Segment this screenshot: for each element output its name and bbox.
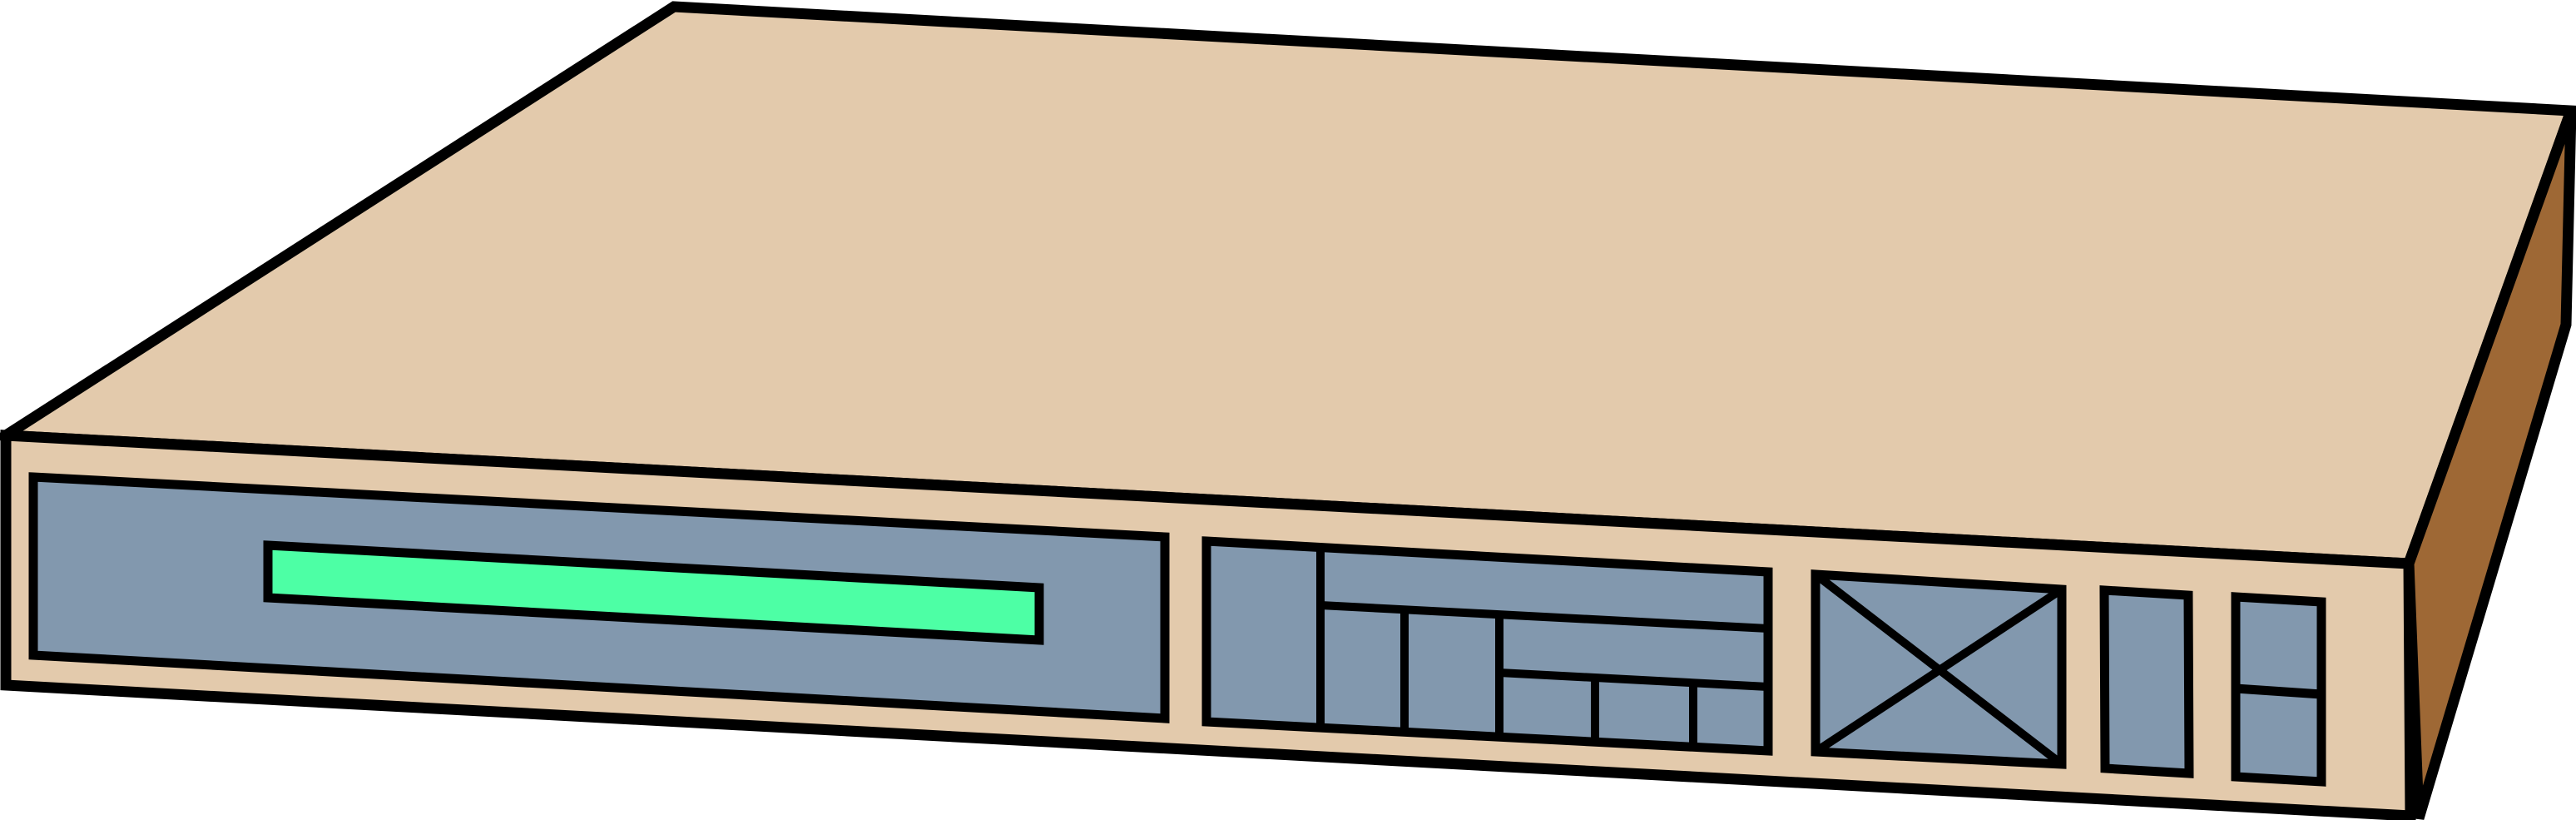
device-illustration-stage <box>0 0 2576 820</box>
middle-port-panel <box>1206 541 1768 751</box>
port-slot-split-divider <box>2236 688 2321 694</box>
port-slot-single <box>2104 590 2189 773</box>
rackmount-network-device-illustration <box>0 0 2576 820</box>
